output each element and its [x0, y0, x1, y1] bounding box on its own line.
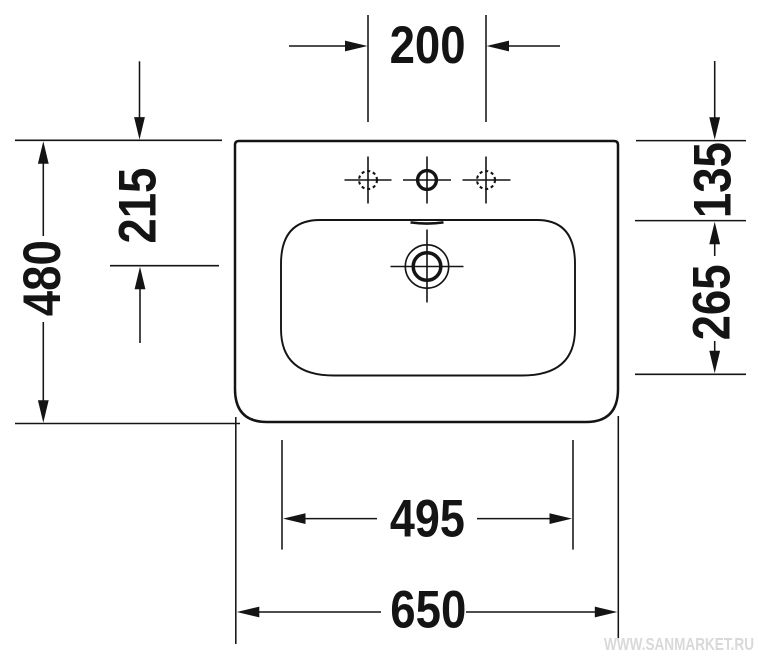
svg-text:135: 135: [684, 142, 743, 218]
svg-text:495: 495: [390, 489, 465, 548]
svg-text:215: 215: [109, 168, 168, 244]
svg-text:650: 650: [390, 580, 466, 639]
svg-text:265: 265: [682, 264, 741, 340]
svg-text:200: 200: [390, 16, 466, 75]
svg-text:480: 480: [13, 240, 72, 316]
svg-text:WWW.SANMARKET.RU: WWW.SANMARKET.RU: [604, 634, 754, 654]
